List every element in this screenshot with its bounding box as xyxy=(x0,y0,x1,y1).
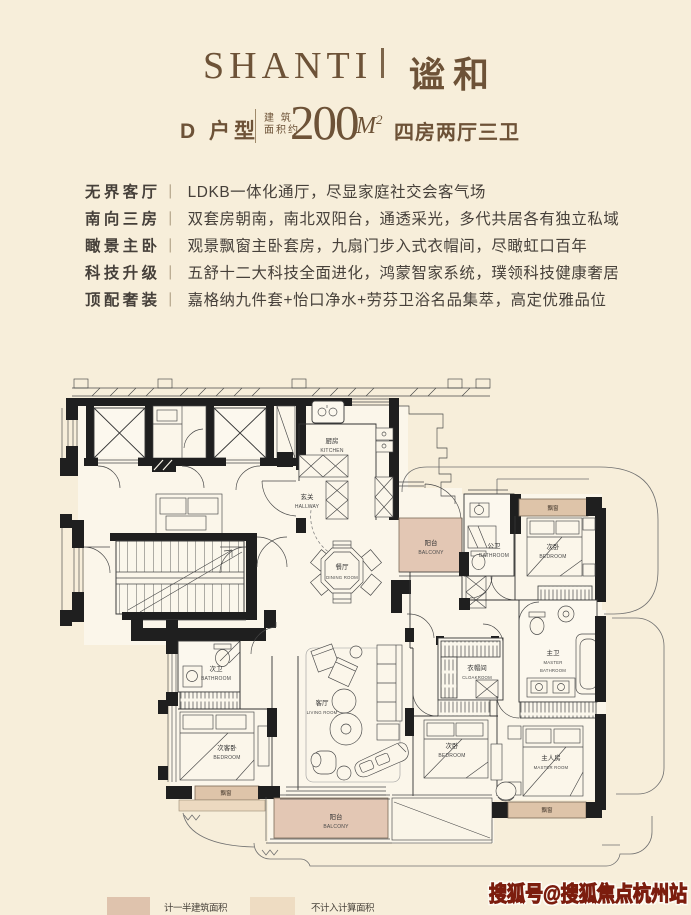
svg-text:厨房: 厨房 xyxy=(326,436,339,445)
svg-text:公卫: 公卫 xyxy=(488,542,502,550)
svg-text:主卫: 主卫 xyxy=(547,648,561,657)
svg-text:MASTER: MASTER xyxy=(543,660,562,665)
svg-text:DINING ROOM: DINING ROOM xyxy=(326,575,358,580)
svg-text:客厅: 客厅 xyxy=(316,698,330,707)
svg-text:BEDROOM: BEDROOM xyxy=(438,753,465,759)
svg-text:HALLWAY: HALLWAY xyxy=(295,504,320,510)
svg-text:MASTER ROOM: MASTER ROOM xyxy=(534,765,569,770)
svg-text:BATHROOM: BATHROOM xyxy=(479,553,509,559)
svg-text:玄关: 玄关 xyxy=(301,492,315,501)
svg-text:飘窗: 飘窗 xyxy=(547,504,559,512)
svg-text:BATHROOM: BATHROOM xyxy=(201,676,231,682)
svg-text:次卧: 次卧 xyxy=(547,542,561,551)
svg-text:阳台: 阳台 xyxy=(330,812,343,821)
svg-text:CLOAKROOM: CLOAKROOM xyxy=(462,675,492,680)
svg-text:BALCONY: BALCONY xyxy=(323,824,349,830)
svg-text:BALCONY: BALCONY xyxy=(418,550,444,556)
svg-text:阳台: 阳台 xyxy=(425,538,438,547)
svg-text:LIVING ROOM: LIVING ROOM xyxy=(307,710,338,715)
svg-text:飘窗: 飘窗 xyxy=(220,789,232,797)
svg-text:餐厅: 餐厅 xyxy=(336,562,350,571)
svg-text:衣帽间: 衣帽间 xyxy=(467,663,487,672)
svg-text:次卫: 次卫 xyxy=(210,664,224,673)
svg-text:次卧: 次卧 xyxy=(446,741,460,750)
svg-text:次客卧: 次客卧 xyxy=(217,743,237,752)
svg-text:主人房: 主人房 xyxy=(541,753,561,762)
svg-text:飘窗: 飘窗 xyxy=(541,806,553,814)
svg-text:KITCHEN: KITCHEN xyxy=(320,448,344,454)
svg-text:BATHROOM: BATHROOM xyxy=(540,668,566,673)
svg-text:BEDROOM: BEDROOM xyxy=(539,554,566,560)
svg-text:BEDROOM: BEDROOM xyxy=(213,755,240,761)
